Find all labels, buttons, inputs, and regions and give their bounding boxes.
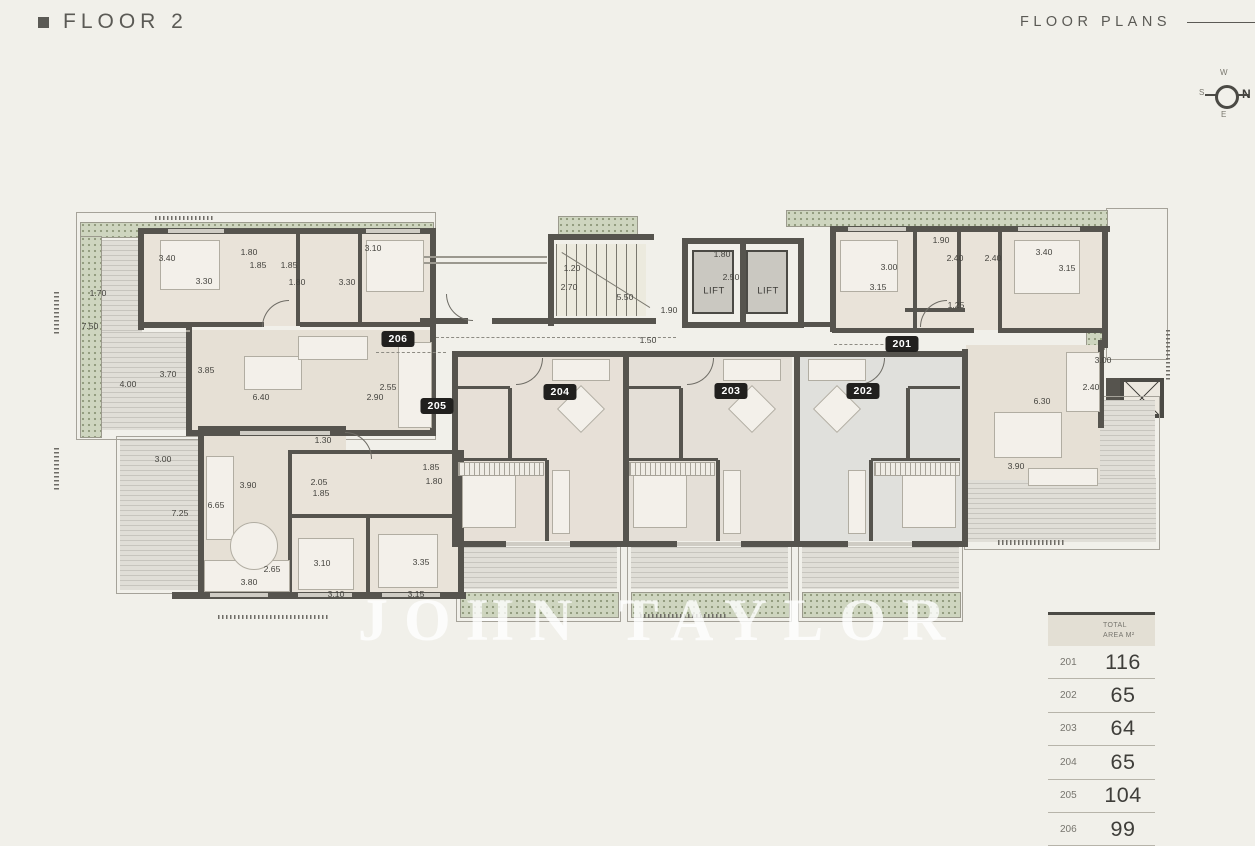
- kitchen-counter: [723, 359, 781, 381]
- area-table-row-204: 20465: [1048, 746, 1155, 779]
- wardrobe: [874, 462, 960, 476]
- dimension-label: 2.40: [985, 253, 1002, 263]
- dimension-label: 3.40: [1036, 247, 1053, 257]
- planter-hatch: [460, 592, 619, 618]
- window: [1018, 227, 1080, 231]
- planter-hatch: [802, 592, 961, 618]
- dimension-label: 3.30: [339, 277, 356, 287]
- area-table-value: 65: [1094, 750, 1152, 775]
- planter-hatch: [786, 210, 1108, 227]
- tick-marks: [54, 448, 59, 490]
- tick-marks: [640, 614, 726, 618]
- area-table-unit: 203: [1048, 723, 1094, 734]
- dimension-label: 1.80: [241, 247, 258, 257]
- wall: [740, 244, 746, 324]
- wall: [998, 232, 1002, 328]
- furniture: [298, 336, 368, 360]
- dimension-label: 1.85: [423, 462, 440, 472]
- dimension-label: 2.40: [947, 253, 964, 263]
- wall: [420, 318, 468, 324]
- furniture: [398, 342, 432, 428]
- unit-badge-206: 206: [381, 331, 414, 347]
- area-table-value: 64: [1094, 716, 1152, 741]
- unit-badge-204: 204: [543, 384, 576, 400]
- wall: [871, 458, 960, 461]
- dimension-label: 6.65: [208, 500, 225, 510]
- area-table-row-206: 20699: [1048, 813, 1155, 846]
- terrace-deck: [460, 547, 617, 589]
- dimension-label: 3.90: [1008, 461, 1025, 471]
- wardrobe: [629, 462, 715, 476]
- dimension-label: 7.50: [82, 321, 99, 331]
- wall: [492, 318, 550, 324]
- wall: [629, 386, 681, 389]
- dimension-label: 3.15: [408, 589, 425, 599]
- tick-marks: [155, 216, 215, 220]
- wall: [545, 460, 549, 541]
- dimension-label: 2.55: [380, 382, 397, 392]
- dimension-label: 3.90: [240, 480, 257, 490]
- tick-marks: [1166, 330, 1170, 382]
- dimension-label: 3.30: [196, 276, 213, 286]
- wall: [186, 326, 192, 436]
- area-table-value: 116: [1094, 650, 1152, 675]
- dimension-label: 1.50: [640, 335, 657, 345]
- dimension-label: 3.15: [1059, 263, 1076, 273]
- lift-shaft: [692, 250, 734, 314]
- dimension-label: 3.40: [159, 253, 176, 263]
- area-table-unit: 204: [1048, 757, 1094, 768]
- dimension-label: 3.80: [241, 577, 258, 587]
- area-table-header: TOTAL AREA M²: [1048, 615, 1155, 646]
- wall: [548, 234, 554, 326]
- area-table-row-201: 201116: [1048, 646, 1155, 679]
- dimension-label: 3.15: [870, 282, 887, 292]
- area-table-unit: 205: [1048, 790, 1094, 801]
- wall: [682, 238, 688, 328]
- dimension-label: 1.90: [661, 305, 678, 315]
- dimension-label: 1.85: [281, 260, 298, 270]
- wall: [794, 351, 800, 547]
- terrace-deck: [968, 478, 1156, 542]
- wall: [452, 351, 458, 547]
- dimension-label: 5.50: [617, 292, 634, 302]
- staircase: [556, 244, 646, 316]
- terrace-outline: [1106, 208, 1168, 360]
- dimension-label: 6.30: [1034, 396, 1051, 406]
- dimension-label: 6.40: [253, 392, 270, 402]
- sofa: [552, 470, 570, 534]
- dimension-label: 1.85: [313, 488, 330, 498]
- wall: [623, 351, 629, 547]
- window: [506, 542, 570, 546]
- dimension-label: 2.50: [723, 272, 740, 282]
- tick-marks: [54, 292, 59, 334]
- dining-table-round: [230, 522, 278, 570]
- terrace-deck: [802, 547, 959, 589]
- sofa: [848, 470, 866, 534]
- dashed-line: [376, 352, 446, 353]
- dimension-label: 3.00: [155, 454, 172, 464]
- dimension-label: 2.05: [311, 477, 328, 487]
- tick-marks: [218, 615, 330, 619]
- corridor-line: [415, 256, 547, 258]
- dimension-label: 1.80: [289, 277, 306, 287]
- area-table-row-203: 20364: [1048, 713, 1155, 746]
- wall: [623, 541, 677, 547]
- dimension-label: 7.25: [172, 508, 189, 518]
- dimension-label: 1.80: [426, 476, 443, 486]
- wall: [548, 318, 656, 324]
- dimension-label: 2.70: [561, 282, 578, 292]
- area-table-header-label: TOTAL AREA M²: [1103, 621, 1147, 640]
- wall: [908, 386, 960, 389]
- wall: [741, 541, 795, 547]
- wall: [913, 232, 917, 328]
- dimension-label: 3.70: [160, 369, 177, 379]
- dimension-label: 4.00: [120, 379, 137, 389]
- wall: [912, 541, 966, 547]
- wall: [292, 514, 460, 518]
- dimension-label: 3.00: [1095, 355, 1112, 365]
- dimension-label: 3.00: [881, 262, 898, 272]
- dimension-label: 1.90: [933, 235, 950, 245]
- wall: [288, 450, 460, 454]
- dimension-label: 3.35: [413, 557, 430, 567]
- area-table-row-205: 205104: [1048, 780, 1155, 813]
- area-table: TOTAL AREA M² 20111620265203642046520510…: [1048, 612, 1155, 846]
- wall: [794, 351, 966, 357]
- window: [677, 542, 741, 546]
- wall: [300, 322, 434, 327]
- wall: [458, 386, 510, 389]
- planter-hatch: [80, 236, 102, 438]
- wall: [548, 234, 654, 240]
- wall: [679, 388, 683, 460]
- wall: [830, 226, 836, 332]
- door-arc: [446, 294, 473, 321]
- bed: [902, 468, 956, 528]
- wall: [906, 388, 910, 460]
- dimension-label: 1.70: [90, 288, 107, 298]
- wall: [142, 322, 264, 327]
- x: [186, 330, 190, 332]
- area-table-value: 104: [1094, 783, 1152, 808]
- wall: [804, 322, 832, 327]
- wall: [138, 228, 144, 330]
- wall: [629, 458, 718, 461]
- dimension-label: 1.30: [315, 435, 332, 445]
- wall: [508, 388, 512, 460]
- window: [848, 542, 912, 546]
- unit-badge-202: 202: [846, 383, 879, 399]
- corridor-line: [415, 262, 547, 264]
- area-table-unit: 201: [1048, 657, 1094, 668]
- tick-marks: [998, 540, 1064, 545]
- bed: [462, 468, 516, 528]
- dimension-label: 3.10: [314, 558, 331, 568]
- dimension-label: 1.20: [564, 263, 581, 273]
- wall: [452, 541, 506, 547]
- lift-shaft: [746, 250, 788, 314]
- wall: [570, 541, 624, 547]
- unit-badge-201: 201: [885, 336, 918, 352]
- wall: [957, 232, 961, 310]
- area-table-value: 65: [1094, 683, 1152, 708]
- furniture: [244, 356, 302, 390]
- window: [210, 593, 268, 597]
- window: [168, 229, 224, 233]
- furniture: [206, 456, 234, 540]
- wall: [716, 460, 720, 541]
- dimension-label: 3.10: [328, 589, 345, 599]
- terrace-deck: [100, 332, 186, 430]
- sofa: [723, 470, 741, 534]
- wall: [458, 458, 547, 461]
- unit-badge-203: 203: [714, 383, 747, 399]
- dimension-label: 2.40: [1083, 382, 1100, 392]
- area-table-value: 99: [1094, 817, 1152, 842]
- terrace-deck: [631, 547, 788, 589]
- dimension-label: 2.65: [264, 564, 281, 574]
- wall: [794, 541, 848, 547]
- wall: [366, 516, 370, 596]
- window: [366, 229, 420, 233]
- terrace-deck: [100, 240, 142, 332]
- wall: [869, 460, 873, 541]
- furniture: [994, 412, 1062, 458]
- wall: [832, 328, 974, 333]
- wall: [962, 349, 968, 481]
- dimension-label: 1.25: [948, 300, 965, 310]
- area-table-unit: 202: [1048, 690, 1094, 701]
- furniture: [1028, 468, 1098, 486]
- dimension-label: 3.85: [198, 365, 215, 375]
- lift-label: LIFT: [703, 286, 725, 297]
- window: [848, 227, 906, 231]
- unit-badge-205: 205: [420, 398, 453, 414]
- wardrobe: [458, 462, 544, 476]
- wall: [623, 351, 795, 357]
- area-table-unit: 206: [1048, 824, 1094, 835]
- wall: [358, 234, 362, 326]
- bed: [633, 468, 687, 528]
- area-table-row-202: 20265: [1048, 679, 1155, 712]
- wall: [998, 328, 1104, 333]
- dimension-label: 1.85: [250, 260, 267, 270]
- wall: [452, 351, 624, 357]
- dimension-label: 1.80: [714, 249, 731, 259]
- dimension-label: 3.10: [365, 243, 382, 253]
- dimension-label: 2.90: [367, 392, 384, 402]
- lift-label: LIFT: [757, 286, 779, 297]
- kitchen-counter: [552, 359, 610, 381]
- wall: [798, 238, 804, 328]
